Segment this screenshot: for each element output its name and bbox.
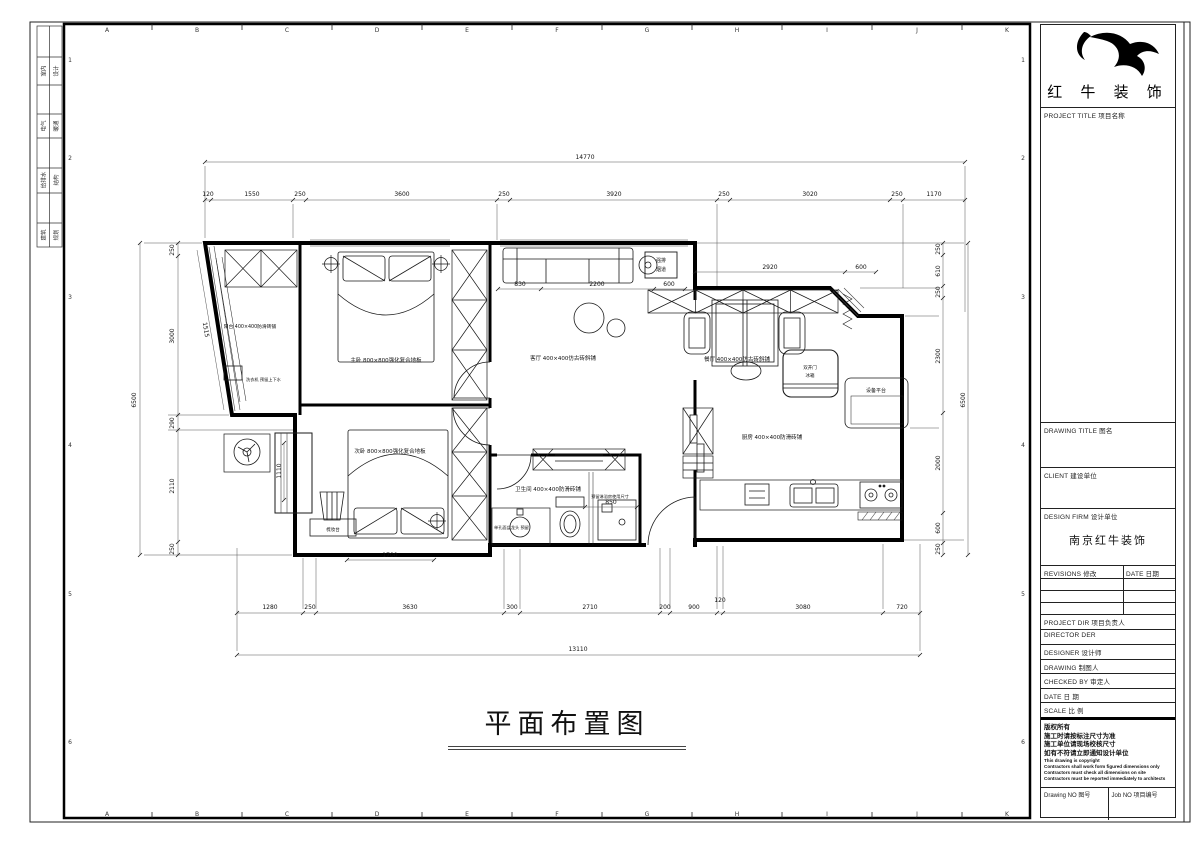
duct-coil: [843, 294, 852, 329]
discipline-label: 规划: [52, 229, 60, 240]
discipline-label: 结构: [52, 174, 60, 186]
checked-by-label: CHECKED BY 审定人: [1041, 674, 1175, 688]
bedroom2-door: [453, 408, 490, 445]
dim: 290: [169, 417, 176, 429]
dim: 1550: [244, 191, 259, 198]
bathroom-fixtures: [492, 472, 636, 545]
bathroom-door: [497, 455, 531, 489]
ruler-letter: E: [465, 811, 469, 818]
room-label-dining: 餐厅 400×400仿古砖斜铺: [704, 355, 770, 363]
logo-section: 红 牛 装 饰: [1041, 25, 1175, 108]
job-no-label: Job NO 项目编号: [1109, 788, 1176, 820]
ruler-letter: B: [195, 27, 199, 34]
dim: 3020: [802, 191, 817, 198]
copyright-line: 版权所有: [1044, 724, 1172, 733]
note-washer: 洗衣机 预留上下水: [246, 376, 282, 383]
revisions-empty-row: [1041, 591, 1175, 603]
dim-left-overall: 6500: [131, 392, 138, 407]
note-basin: 单孔面盆龙头 预留: [494, 524, 529, 531]
dining-stool: [731, 362, 761, 380]
dim: 600: [935, 522, 942, 534]
scale-label: SCALE 比 例: [1041, 703, 1175, 717]
dim: 600: [855, 264, 867, 271]
dim: 250: [891, 191, 903, 198]
discipline-label: 设计: [52, 65, 60, 77]
label-vent: 烟道: [656, 266, 666, 273]
discipline-label: 电气: [40, 120, 48, 132]
director-label: DIRECTOR DER: [1041, 630, 1175, 641]
dim: 200: [659, 604, 671, 611]
dim-diagonal: 1515: [201, 322, 210, 338]
washing-machine: [598, 500, 636, 540]
room-label-bedroom2: 次卧 800×800强化复合地板: [354, 447, 426, 455]
dim: 250: [935, 286, 942, 298]
kitchen-window: [858, 512, 902, 520]
drawing-title-section: DRAWING TITLE 图名: [1041, 423, 1175, 468]
ruler-number: 2: [1021, 155, 1025, 162]
furniture: [216, 248, 908, 545]
ruler-number: 4: [68, 442, 72, 449]
dim: 3080: [795, 604, 810, 611]
revisions-empty-row: [1041, 579, 1175, 591]
title-block: 红 牛 装 饰 PROJECT TITLE 项目名称 DRAWING TITLE…: [1040, 24, 1176, 818]
ruler-letter: D: [375, 27, 380, 34]
revisions-section: REVISIONS 修改 DATE 日期: [1041, 566, 1175, 615]
dim: 250: [294, 191, 306, 198]
dim: 2200: [589, 281, 604, 288]
design-firm-value: 南京红牛装饰: [1041, 532, 1175, 548]
date-row: DATE 日 期: [1041, 689, 1175, 703]
discipline-label: 建筑: [40, 229, 48, 241]
kitchen-counter: [700, 480, 902, 511]
windows: [209, 240, 902, 520]
dim: 120: [202, 191, 214, 198]
ruler-number: 6: [68, 739, 72, 746]
dim: 610: [935, 265, 942, 277]
shower-glass: [589, 472, 593, 545]
design-firm-label: DESIGN FIRM 设计单位: [1041, 509, 1175, 523]
label-fridge: 双开门: [803, 364, 817, 371]
dimension-texts: 14770 120 1550 250 3600 250 3920 250 302…: [131, 154, 967, 653]
dim: 1110: [276, 463, 283, 478]
kitchen-sliding-door: [697, 444, 704, 472]
room-label-living: 客厅 400×400仿古砖斜铺: [530, 354, 596, 362]
ruler-number: 3: [1021, 294, 1025, 301]
brand-name: 红 牛 装 饰: [1041, 81, 1175, 102]
date-label: DATE 日 期: [1041, 689, 1175, 703]
ruler-letter: H: [735, 27, 740, 34]
ruler-number: 2: [68, 155, 72, 162]
plan-title: 平面布置图: [448, 702, 686, 750]
ruler-letter: C: [285, 811, 289, 818]
designer-label: DESIGNER 设计师: [1041, 645, 1175, 659]
ruler-letter: B: [195, 811, 199, 818]
ruler-letter: G: [645, 811, 650, 818]
ruler-letter: J: [915, 27, 918, 34]
ruler-letters-top: A B C D E F G H I J K: [105, 27, 1010, 34]
dim: 600: [663, 281, 675, 288]
copyright-section: 版权所有 施工时请按标注尺寸为准 施工单位请现场校核尺寸 如有不符请立即通知设计…: [1041, 722, 1175, 787]
drawing-sheet: A B C D E F G H I J K A B C D E F G H I …: [0, 0, 1200, 844]
room-label-balcony: 阳台 400×400防滑砖铺: [224, 323, 277, 330]
ruler-letter: H: [735, 811, 740, 818]
ruler-letter: D: [375, 811, 380, 818]
client-section: CLIENT 建设单位: [1041, 468, 1175, 509]
dim: 2110: [169, 478, 176, 493]
discipline-label: 给排水: [40, 171, 48, 188]
revisions-label: REVISIONS 修改: [1041, 566, 1100, 580]
ruler-number: 4: [1021, 442, 1025, 449]
copyright-line: 如有不符请立即通知设计单位: [1044, 750, 1172, 759]
ruler-number: 5: [68, 591, 72, 598]
drawing-no-section: Drawing NO 图号 Job NO 项目编号: [1041, 787, 1175, 820]
dim-bottom-overall: 13110: [568, 646, 587, 653]
ruler-number: 5: [1021, 591, 1025, 598]
master-wardrobe: [452, 250, 487, 400]
dim: 2710: [582, 604, 597, 611]
copyright-line: 施工时请按标注尺寸为准: [1044, 733, 1172, 742]
project-dir-row: PROJECT DIR 项目负责人: [1041, 615, 1175, 630]
drawing-no-label: Drawing NO 图号: [1041, 788, 1109, 820]
dim: 3600: [394, 191, 409, 198]
discipline-label: 室内: [40, 65, 48, 76]
dim: 3920: [606, 191, 621, 198]
ruler-letter: G: [645, 27, 650, 34]
bathroom-cabinet: [533, 449, 625, 470]
balcony-cabinet: [225, 250, 297, 287]
revisions-header: REVISIONS 修改 DATE 日期: [1041, 566, 1175, 579]
dim: 3000: [169, 328, 176, 343]
project-title-section: PROJECT TITLE 项目名称: [1041, 108, 1175, 423]
dim: 1170: [926, 191, 941, 198]
coffee-table: [574, 303, 625, 337]
label-platform: 设备平台: [866, 387, 886, 394]
label-fridge: 冰箱: [806, 372, 815, 379]
dim: 250: [718, 191, 730, 198]
ruler-number: 1: [1021, 57, 1025, 64]
discipline-label: 暖通: [52, 120, 60, 132]
ruler-numbers-right: 1 2 3 4 5 6: [1021, 57, 1025, 746]
entry-door: [648, 497, 695, 545]
dim: 250: [304, 604, 316, 611]
dim: 1280: [262, 604, 277, 611]
room-label-master: 主卧 800×800强化复合地板: [350, 356, 422, 364]
side-table: [639, 256, 657, 274]
ruler-number: 6: [1021, 739, 1025, 746]
copyright-line: 施工单位请现场校核尺寸: [1044, 741, 1172, 750]
gas-stove: [860, 482, 902, 508]
ruler-numbers-left: 1 2 3 4 5 6: [68, 57, 72, 746]
ruler-letter: F: [555, 27, 559, 34]
checked-by-row: CHECKED BY 审定人: [1041, 674, 1175, 689]
revisions-empty-row: [1041, 603, 1175, 615]
label-dresser: 梳妆台: [326, 526, 340, 533]
project-dir-label: PROJECT DIR 项目负责人: [1041, 615, 1175, 629]
dim: 1700: [382, 552, 397, 559]
dim: 300: [506, 604, 518, 611]
dim-top-overall: 14770: [575, 154, 594, 161]
ruler-letter: F: [555, 811, 559, 818]
dim: 250: [935, 243, 942, 255]
client-label: CLIENT 建设单位: [1041, 468, 1175, 482]
cabinets: [225, 250, 838, 540]
master-door: [454, 362, 490, 398]
copyright-line: Contractors must be reported immediately…: [1044, 776, 1172, 782]
designer-row: DESIGNER 设计师: [1041, 645, 1175, 660]
ruler-number: 1: [68, 57, 72, 64]
dim: 250: [935, 543, 942, 555]
dim: 250: [498, 191, 510, 198]
discipline-strip: 室内 设计 电气 暖通 给排水 结构 建筑 规划: [37, 26, 62, 247]
room-label-kitchen: 厨房 400×400防滑砖铺: [742, 433, 803, 441]
dim: 720: [896, 604, 908, 611]
scale-row: SCALE 比 例: [1041, 703, 1175, 717]
rednew-bull-logo: [1054, 28, 1164, 80]
dim: 250: [169, 543, 176, 555]
small-cabinet: [745, 484, 769, 505]
ruler-number: 3: [68, 294, 72, 301]
kitchen-sliding-door: [690, 415, 697, 443]
ruler-letter: E: [465, 27, 469, 34]
dim: 900: [688, 604, 700, 611]
dim: 830: [514, 281, 526, 288]
equipment-platform: [845, 378, 908, 428]
note-shower: 预留淋浴房使用尺寸: [591, 493, 629, 500]
thick-divider: [1041, 717, 1175, 720]
label-vent: 强排: [656, 257, 666, 264]
project-title-label: PROJECT TITLE 项目名称: [1041, 108, 1175, 122]
room-label-bathroom: 卫生间 400×400防滑砖铺: [515, 485, 581, 493]
ruler-letter: I: [826, 811, 828, 818]
dim: 2300: [935, 348, 942, 363]
director-row: DIRECTOR DER: [1041, 630, 1175, 645]
dim-right-overall: 6500: [960, 392, 967, 407]
ruler-letter: A: [105, 27, 110, 34]
drawing-by-label: DRAWING 制图人: [1041, 660, 1175, 674]
ruler-letter: C: [285, 27, 289, 34]
toilet: [556, 497, 584, 507]
drawing-by-row: DRAWING 制图人: [1041, 660, 1175, 674]
bedroom2-bed: [348, 430, 448, 538]
master-bed: [338, 252, 434, 362]
sofa: [503, 248, 657, 283]
dim: 2920: [762, 264, 777, 271]
ruler-letter: K: [1005, 27, 1010, 34]
revisions-date-label: DATE 日期: [1123, 566, 1162, 580]
design-firm-section: DESIGN FIRM 设计单位 南京红牛装饰: [1041, 509, 1175, 566]
dim: 3630: [402, 604, 417, 611]
ruler-letter: I: [826, 27, 828, 34]
dim: 120: [714, 597, 726, 604]
dim: 850: [605, 499, 617, 506]
kitchen-sink: [790, 480, 838, 508]
dim: 250: [169, 244, 176, 256]
ruler-letter: J: [915, 811, 918, 818]
bedroom2-wardrobe: [452, 408, 487, 540]
drawing-title-label: DRAWING TITLE 图名: [1041, 423, 1175, 437]
dim: 2000: [935, 455, 942, 470]
